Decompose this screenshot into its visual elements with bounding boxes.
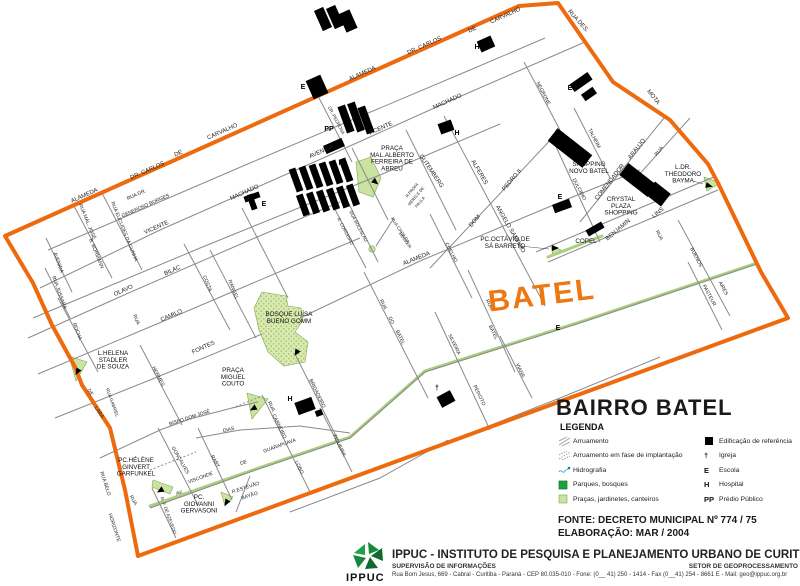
legend-item: PPPrédio Público xyxy=(704,492,800,507)
source-note: FONTE: DECRETO MUNICIPAL Nº 774 / 75 ELA… xyxy=(558,515,757,540)
map-marker-pp: PP xyxy=(324,126,334,133)
street-label: RUA JUSSARA xyxy=(50,275,68,310)
street-line xyxy=(444,116,545,306)
legend: ArruamentoArruamento em fase de implanta… xyxy=(558,434,800,507)
shopping-novo-batel-label: SHOPPINGNOVO BATEL xyxy=(569,161,609,175)
legend-item: Praças, jardinetes, canteiros xyxy=(558,492,704,507)
street-label: RABY xyxy=(209,454,221,469)
footer-dept-right: SETOR DE GEOPROCESSAMENTO xyxy=(689,563,798,570)
street-label: NEGRONE xyxy=(534,81,551,107)
street-label: BUENOS xyxy=(688,247,704,269)
street-label: OLAVO xyxy=(113,284,134,298)
map-marker-e: E xyxy=(558,194,563,201)
street-line xyxy=(678,220,730,316)
legend-item: Edificação de referência xyxy=(704,434,800,449)
map-sheet: EEEEEHHHHHPP†ALAMEDADR. CARLOSDECARVALHO… xyxy=(0,0,800,586)
street-label: CAMILO xyxy=(160,309,184,324)
map-marker-e: E xyxy=(568,85,573,92)
reference-building xyxy=(294,397,315,415)
street-label: RUA MAL. JOSÉ xyxy=(77,203,98,241)
legend-item: Arruamento em fase de implantação xyxy=(558,449,704,464)
street-line xyxy=(196,426,350,438)
street-label: DO xyxy=(387,316,396,325)
street-label: RUA xyxy=(654,229,665,242)
legend-item: EEscola xyxy=(704,463,800,478)
praca-miguel-couto-label: PRAÇAMIGUELCOUTO xyxy=(221,367,246,388)
praca-giovanni-label: PC.GIOVANNIGERVASONI xyxy=(181,494,218,515)
legend-item: Hidrografia xyxy=(558,463,704,478)
region-label-batel: BATEL xyxy=(486,273,597,319)
bosque-luisa-bueno-gomm xyxy=(254,292,308,366)
street-label: B. BORMANN xyxy=(87,238,105,270)
largo-theodoro-label: L.DR.THEODOROBAYMA xyxy=(665,164,701,185)
street-label: BATEL xyxy=(394,329,406,346)
street-label: ALAMEDA xyxy=(348,66,377,83)
street-label: PEDRO II xyxy=(501,168,523,192)
park-square-icon xyxy=(558,480,573,490)
letter-h-icon: H xyxy=(704,480,719,489)
legend-item: Parques, bosques xyxy=(558,478,704,493)
street-label: RUA xyxy=(378,298,388,311)
street-label: R. F. DE AZEVEDO xyxy=(159,496,177,535)
street-line xyxy=(33,124,500,318)
reference-building xyxy=(315,409,324,417)
footer-dept-left: SUPERVISÃO DE INFORMAÇÕES xyxy=(392,563,496,570)
source-line: FONTE: DECRETO MUNICIPAL Nº 774 / 75 xyxy=(558,515,757,528)
legend-item: HHospital xyxy=(704,478,800,493)
street-label: RUA BELO xyxy=(98,471,111,497)
street-label: COELHO xyxy=(443,242,458,264)
street-label: DR. CARLOS xyxy=(407,36,443,56)
street-label: R. CORDEIRO xyxy=(336,217,355,246)
street-label: DE xyxy=(239,459,248,467)
legend-item-label: Escola xyxy=(719,467,739,474)
street-label: HORIZONTE xyxy=(107,513,122,543)
footer-address: Rua Bom Jesus, 669 - Cabral - Curitiba -… xyxy=(392,572,787,578)
reference-building xyxy=(437,390,456,408)
legend-item-label: Edificação de referência xyxy=(719,438,792,445)
street-label: ROCHA xyxy=(71,322,83,342)
praca-helene-label: PC.HÉLÈNEGINVERTGARFUNKEL xyxy=(117,455,156,478)
street-label: HERMES xyxy=(150,366,166,388)
map-marker-e: E xyxy=(301,84,306,91)
legend-item-label: Hidrografia xyxy=(573,467,606,474)
legend-item-label: Praças, jardinetes, canteiros xyxy=(573,496,659,503)
street-label: BILAC xyxy=(163,265,182,278)
street-label: AVENIDA xyxy=(51,251,64,274)
street-label: RUA DR. xyxy=(126,188,147,202)
street-line xyxy=(38,238,360,374)
map-marker-†: † xyxy=(435,385,439,392)
street-label: DULCIDIO xyxy=(571,178,588,202)
reference-building xyxy=(438,119,455,134)
map-marker-h: H xyxy=(338,160,343,167)
legend-item-label: Parques, bosques xyxy=(573,481,628,488)
legend-item-label: Arruamento em fase de implantação xyxy=(573,452,683,459)
legend-right-column: Edificação de referência†IgrejaEEscolaHH… xyxy=(704,434,800,507)
light-square-icon xyxy=(558,494,573,504)
elaboration-line: ELABORAÇÃO: MAR / 2004 xyxy=(558,528,757,541)
street-label: RUA GABRIEL xyxy=(105,388,120,418)
cross-icon: † xyxy=(704,451,719,460)
map-marker-e: E xyxy=(262,201,267,208)
praca-octavio-label: PC.OCTÁVIO DESÁ BARRETO xyxy=(480,234,529,250)
praca-helene-garfunkel xyxy=(152,480,173,494)
legend-item-label: Igreja xyxy=(719,452,736,459)
street-line xyxy=(688,262,722,330)
reference-building xyxy=(306,75,329,100)
legend-title: LEGENDA xyxy=(560,422,604,432)
reference-building xyxy=(581,87,597,102)
reference-building xyxy=(569,72,592,92)
largo-helena-label: L.HELENASTADLERDE SOUZA xyxy=(97,350,130,371)
bosque-label: BOSQUE LUÍSABUENO GOMM xyxy=(266,309,314,325)
page-title: BAIRRO BATEL xyxy=(556,395,733,421)
street-label: BENJAMIN xyxy=(605,218,632,242)
street-label: VISCONDE xyxy=(187,471,214,486)
map-marker-h: H xyxy=(454,130,459,137)
street-label: BATEL xyxy=(487,324,499,341)
street-label: DR. CARLOS xyxy=(130,161,166,181)
legend-item-label: Hospital xyxy=(719,481,744,488)
street-label: MACHADO xyxy=(432,93,463,111)
legend-item: †Igreja xyxy=(704,449,800,464)
street-label: RUA xyxy=(131,314,141,327)
legend-item: Arruamento xyxy=(558,434,704,449)
street-label: ARAUJO xyxy=(627,138,647,161)
praca-miguel-couto xyxy=(247,393,268,419)
letters-pp-icon: PP xyxy=(704,495,719,504)
hydro-icon xyxy=(558,465,573,476)
street-label: GUTEMBERG xyxy=(418,154,445,190)
crystal-plaza-label: CRYSTALPLAZASHOPPING xyxy=(604,196,637,217)
map-marker-h: H xyxy=(287,396,292,403)
street-label: GUARAPUAVA xyxy=(263,437,298,454)
footer-departments: SUPERVISÃO DE INFORMAÇÕES SETOR DE GEOPR… xyxy=(392,563,798,570)
footer-org: IPPUC - INSTITUTO DE PESQUISA E PLANEJAM… xyxy=(392,549,800,561)
legend-left-column: ArruamentoArruamento em fase de implanta… xyxy=(558,434,704,507)
street-line xyxy=(376,218,394,246)
street-label: VIANA xyxy=(514,362,526,379)
legend-item-label: Prédio Público xyxy=(719,496,763,503)
hatch-dashed-icon xyxy=(558,450,573,461)
reference-building xyxy=(585,221,604,236)
black-square-icon xyxy=(704,436,719,446)
ippuc-logo-icon xyxy=(349,541,387,571)
street-label: DE xyxy=(85,388,94,398)
hatch-icon xyxy=(558,436,573,447)
legend-item-label: Arruamento xyxy=(573,438,609,445)
street-line xyxy=(435,312,490,430)
street-label: LOBO xyxy=(293,460,305,475)
street-label: VICENTE xyxy=(143,220,169,236)
street-label: ALAMEDA xyxy=(402,251,431,267)
map-marker-h: H xyxy=(363,116,368,123)
map-marker-e: E xyxy=(556,325,561,332)
street-label: DIAS xyxy=(222,426,235,435)
street-label: FONTES xyxy=(191,340,216,355)
map-marker-h: H xyxy=(474,44,479,51)
street-line-planned xyxy=(150,452,196,470)
street-label: DOM xyxy=(468,214,482,229)
copel-label: COPEL xyxy=(575,238,597,245)
street-label: COSTA xyxy=(201,275,213,293)
letter-e-icon: E xyxy=(704,466,719,475)
ippuc-logo-text: IPPUC xyxy=(346,572,385,584)
